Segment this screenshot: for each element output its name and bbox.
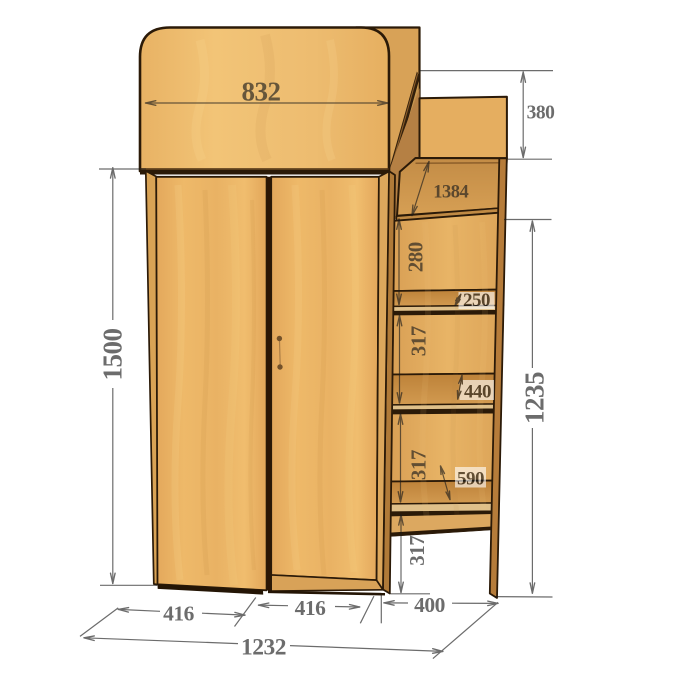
svg-text:1232: 1232: [241, 635, 286, 661]
svg-text:416: 416: [295, 596, 327, 620]
svg-text:1384: 1384: [433, 183, 468, 203]
svg-text:280: 280: [404, 242, 428, 272]
svg-text:1500: 1500: [98, 329, 128, 381]
svg-text:590: 590: [457, 469, 484, 490]
svg-text:380: 380: [527, 103, 555, 124]
svg-text:317: 317: [407, 450, 431, 480]
svg-text:1235: 1235: [520, 372, 550, 424]
svg-text:832: 832: [242, 77, 281, 107]
svg-text:317: 317: [407, 326, 431, 356]
svg-text:317: 317: [405, 536, 429, 566]
svg-text:400: 400: [414, 593, 445, 617]
svg-text:250: 250: [463, 290, 490, 311]
svg-text:440: 440: [464, 382, 491, 403]
svg-text:416: 416: [163, 602, 195, 626]
